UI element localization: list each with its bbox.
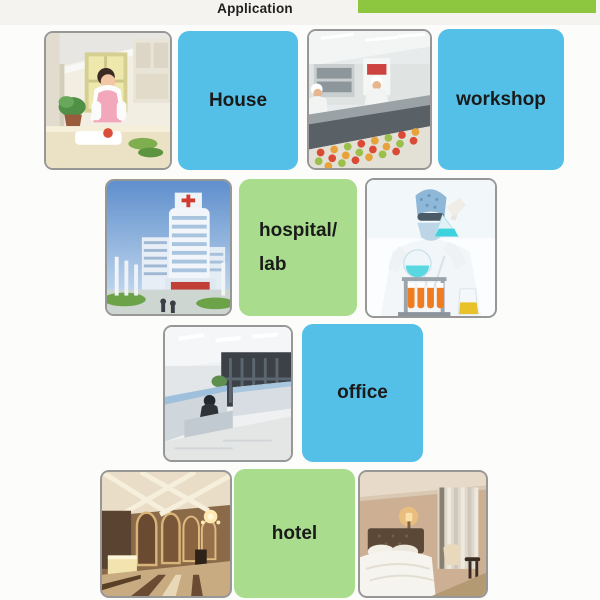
workshop-photo (307, 29, 432, 170)
label-workshop-text: workshop (456, 89, 546, 111)
hotel-lobby-photo (100, 470, 232, 598)
label-workshop: workshop (438, 29, 564, 170)
label-hotel: hotel (234, 469, 355, 598)
food-workshop-illustration (309, 31, 430, 168)
lab-photo (365, 178, 497, 318)
label-house: House (178, 31, 298, 170)
hotel-room-photo (358, 470, 488, 598)
home-kitchen-illustration (46, 33, 170, 168)
hospital-photo (105, 179, 232, 316)
label-hotel-text: hotel (272, 523, 317, 545)
label-house-text: House (209, 90, 267, 112)
label-office: office (302, 324, 423, 462)
application-page: Application (0, 0, 600, 600)
label-hospital-lab-lines: hospital/ lab (259, 214, 337, 281)
label-hospital-line2: lab (259, 248, 337, 281)
page-header: Application (0, 0, 600, 25)
hospital-building-illustration (107, 181, 230, 314)
label-hospital-line1: hospital/ (259, 214, 337, 247)
label-hospital-lab: hospital/ lab (239, 179, 357, 316)
hotel-lobby-illustration (102, 472, 230, 596)
label-office-text: office (337, 382, 388, 404)
page-title: Application (200, 1, 310, 16)
house-photo (44, 31, 172, 170)
green-accent-bar (358, 0, 596, 13)
office-interior-illustration (165, 327, 291, 460)
hotel-room-illustration (360, 472, 486, 596)
office-photo (163, 325, 293, 462)
laboratory-scientist-illustration (367, 180, 495, 316)
